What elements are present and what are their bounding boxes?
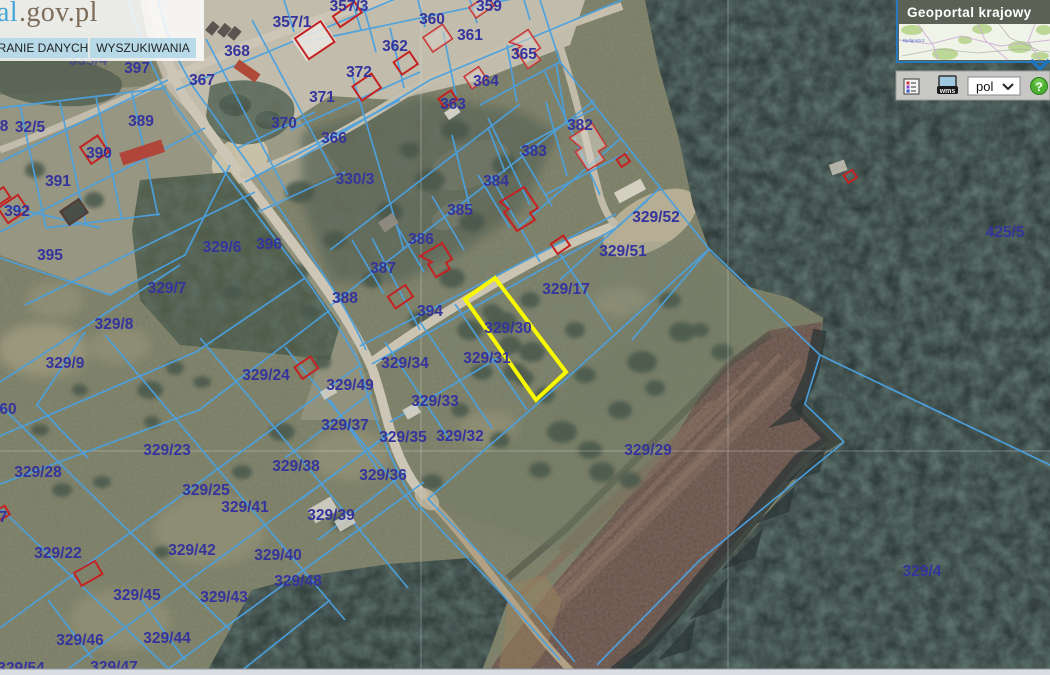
svg-text:367: 367	[189, 72, 215, 89]
svg-text:Geoportal krajowy: Geoportal krajowy	[907, 5, 1032, 20]
svg-text:391: 391	[45, 173, 71, 190]
svg-text:329/40: 329/40	[254, 547, 301, 564]
svg-text:382: 382	[567, 117, 593, 134]
svg-text:60: 60	[0, 401, 17, 418]
svg-text:385: 385	[447, 202, 473, 219]
svg-text:363: 363	[440, 96, 466, 113]
svg-text:384: 384	[483, 173, 509, 190]
svg-text:329/31: 329/31	[463, 350, 511, 367]
svg-text:7: 7	[0, 509, 7, 526]
svg-text:329/43: 329/43	[200, 589, 248, 606]
svg-text:366: 366	[321, 130, 347, 147]
svg-text:Bydgoszcz: Bydgoszcz	[903, 38, 926, 43]
svg-text:329/32: 329/32	[436, 428, 483, 445]
svg-text:?: ?	[1035, 80, 1042, 94]
svg-text:329/4: 329/4	[903, 563, 942, 580]
svg-text:329/48: 329/48	[274, 573, 322, 590]
svg-text:397: 397	[124, 60, 150, 77]
svg-text:329/28: 329/28	[14, 464, 62, 481]
svg-text:329/49: 329/49	[326, 377, 374, 394]
svg-text:329/51: 329/51	[599, 243, 647, 260]
svg-text:329/37: 329/37	[321, 417, 368, 434]
svg-text:357/1: 357/1	[273, 14, 312, 31]
svg-text:329/38: 329/38	[272, 458, 320, 475]
svg-text:362: 362	[382, 38, 408, 55]
svg-text:329/8: 329/8	[95, 316, 134, 333]
svg-text:329/29: 329/29	[624, 442, 672, 459]
svg-text:386: 386	[408, 231, 434, 248]
svg-text:370: 370	[271, 115, 297, 132]
svg-text:329/39: 329/39	[307, 507, 355, 524]
svg-text:395: 395	[37, 247, 63, 264]
svg-text:329/7: 329/7	[148, 280, 187, 297]
svg-text:.gov.pl: .gov.pl	[19, 0, 98, 28]
svg-text:372: 372	[346, 64, 372, 81]
svg-text:359: 359	[476, 0, 502, 15]
svg-text:329/44: 329/44	[143, 630, 191, 647]
svg-text:RANIE DANYCH: RANIE DANYCH	[0, 41, 88, 55]
svg-text:392: 392	[4, 203, 30, 220]
svg-text:8: 8	[0, 118, 9, 135]
svg-text:329/36: 329/36	[359, 467, 407, 484]
svg-text:383: 383	[521, 143, 547, 160]
svg-text:388: 388	[332, 290, 358, 307]
svg-text:wms: wms	[939, 88, 956, 95]
svg-text:329/41: 329/41	[221, 499, 269, 516]
svg-text:329/34: 329/34	[381, 355, 429, 372]
svg-text:389: 389	[128, 113, 154, 130]
svg-text:329/33: 329/33	[411, 393, 459, 410]
svg-text:390: 390	[86, 145, 112, 162]
svg-text:al: al	[0, 0, 18, 28]
svg-text:329/6: 329/6	[203, 239, 242, 256]
svg-text:329/46: 329/46	[56, 632, 104, 649]
svg-text:361: 361	[457, 27, 483, 44]
svg-text:394: 394	[417, 303, 443, 320]
svg-text:329/23: 329/23	[143, 442, 191, 459]
svg-text:425/5: 425/5	[986, 224, 1025, 241]
svg-text:360: 360	[419, 11, 445, 28]
svg-text:396: 396	[256, 236, 282, 253]
svg-text:329/9: 329/9	[46, 355, 85, 372]
svg-text:387: 387	[370, 260, 396, 277]
svg-text:329/42: 329/42	[168, 542, 215, 559]
svg-text:330/3: 330/3	[336, 171, 375, 188]
svg-text:371: 371	[309, 89, 335, 106]
svg-text:368: 368	[224, 43, 250, 60]
svg-text:365: 365	[511, 46, 537, 63]
svg-text:WYSZUKIWANIA: WYSZUKIWANIA	[96, 41, 190, 55]
svg-text:329/52: 329/52	[632, 209, 679, 226]
svg-text:329/30: 329/30	[484, 320, 531, 337]
svg-text:329/22: 329/22	[34, 545, 81, 562]
svg-text:364: 364	[473, 73, 499, 90]
svg-text:329/17: 329/17	[542, 281, 589, 298]
svg-text:32/5: 32/5	[15, 119, 46, 136]
svg-text:329/24: 329/24	[242, 367, 290, 384]
svg-text:357/3: 357/3	[330, 0, 369, 15]
svg-text:pol: pol	[976, 79, 993, 94]
svg-text:329/35: 329/35	[379, 429, 427, 446]
svg-text:329/25: 329/25	[182, 482, 230, 499]
svg-text:329/45: 329/45	[113, 587, 161, 604]
